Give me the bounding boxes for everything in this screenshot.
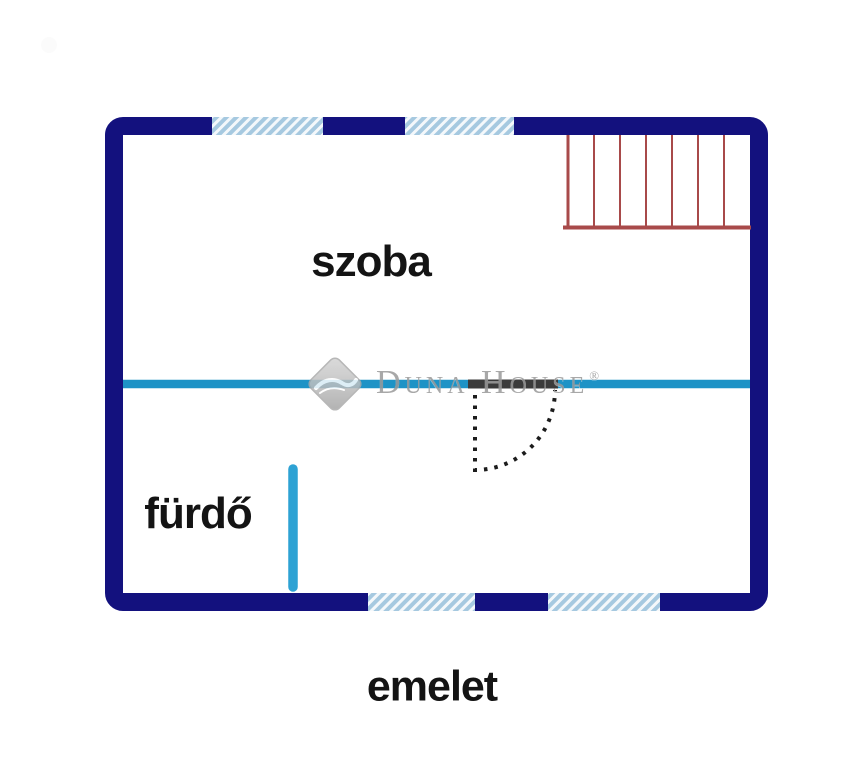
staircase-treads (594, 135, 724, 227)
door (468, 380, 558, 471)
window-top-right (405, 117, 514, 135)
door-swing-arc (475, 390, 555, 470)
door-leaf (468, 380, 558, 389)
windows (212, 117, 660, 611)
staircase (563, 135, 751, 229)
floor-plan-canvas: szoba fürdő emelet Duna House® (0, 0, 842, 768)
floor-label: emelet (367, 663, 497, 712)
faint-smudge (41, 37, 57, 53)
floor-plan-drawing (0, 0, 842, 768)
window-bottom-right (548, 593, 660, 611)
room-label-furdo: fürdő (144, 489, 251, 539)
room-label-szoba: szoba (311, 237, 431, 287)
window-top-left (212, 117, 323, 135)
window-bottom-left (368, 593, 475, 611)
